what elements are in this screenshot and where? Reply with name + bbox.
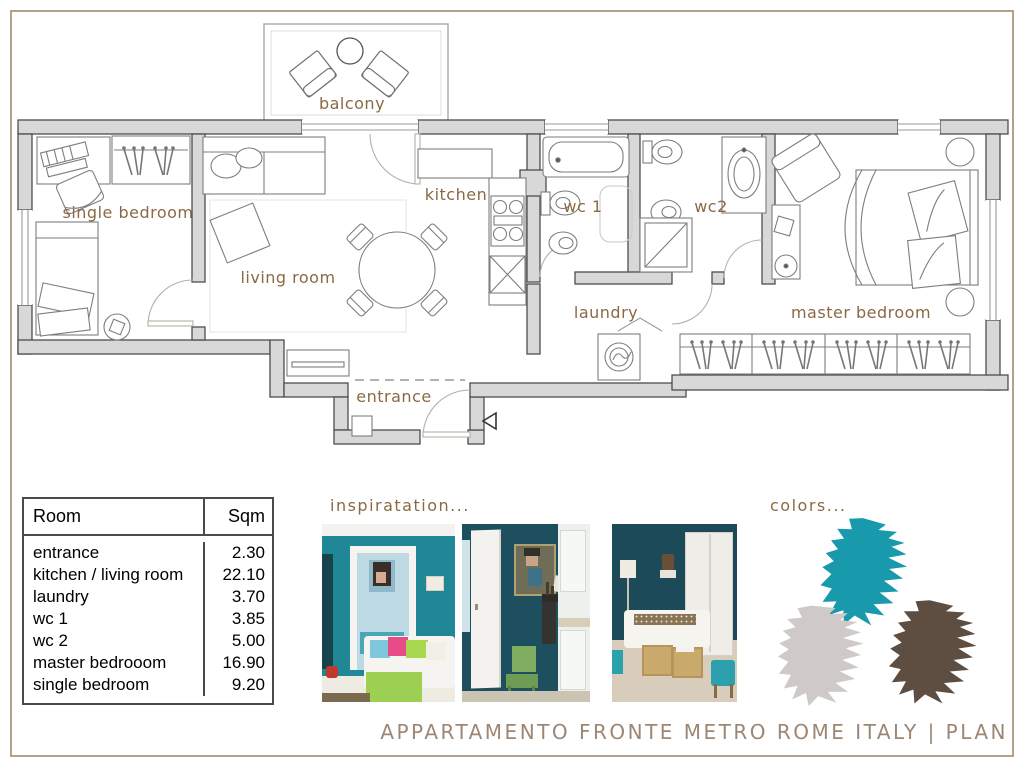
label-wc2: wc2 (694, 197, 728, 216)
table-row-sqm: 22.10 (205, 564, 265, 586)
table-body: entrance kitchen / living room laundry w… (24, 536, 272, 703)
table-row-room: wc 1 (33, 608, 203, 630)
inspiration-photo-1 (322, 524, 455, 702)
table-row-room: entrance (33, 542, 203, 564)
col-header-sqm: Sqm (203, 499, 272, 534)
table-row-sqm: 3.85 (205, 608, 265, 630)
wardrobe (112, 136, 190, 184)
table-row-sqm: 2.30 (205, 542, 265, 564)
table-row-sqm: 3.70 (205, 586, 265, 608)
plan-board-page: balcony single bedroom living room kitch… (0, 0, 1024, 768)
label-balcony: balcony (319, 94, 385, 113)
color-swatch-brown (884, 596, 991, 711)
label-entrance: entrance (356, 387, 431, 406)
table-row-room: single bedroom (33, 674, 203, 696)
floor-plan: balcony single bedroom living room kitch… (0, 0, 1024, 490)
toilet (541, 192, 550, 215)
nightstand (946, 138, 974, 166)
label-kitchen: kitchen (425, 185, 487, 204)
inspiration-photo-2 (462, 524, 590, 702)
armchair (770, 132, 842, 204)
label-single-bedroom: single bedroom (63, 203, 194, 222)
table-header: Room Sqm (24, 499, 272, 536)
nightstand (946, 288, 974, 316)
table-row-room: wc 2 (33, 630, 203, 652)
wc1-fixtures (541, 137, 632, 254)
board-title: APPARTAMENTO FRONTE METRO ROME ITALY | P… (380, 720, 1008, 744)
label-living-room: living room (240, 268, 335, 287)
table-row-sqm: 16.90 (205, 652, 265, 674)
table-row-room: kitchen / living room (33, 564, 203, 586)
toilet (643, 141, 652, 163)
bath-mat (600, 186, 632, 242)
balcony-table (337, 38, 363, 64)
room-area-table: Room Sqm entrance kitchen / living room … (22, 497, 274, 705)
label-laundry: laundry (574, 303, 638, 322)
entry-arrow (483, 413, 496, 429)
color-swatch-gray (773, 600, 878, 709)
label-master-bedroom: master bedroom (791, 303, 931, 322)
table-row-room: master bedrooom (33, 652, 203, 674)
counter (418, 149, 492, 178)
laundry-fixtures (598, 318, 662, 380)
inspiration-photo-3 (612, 524, 737, 702)
table-row-sqm: 5.00 (205, 630, 265, 652)
single-bedroom-furniture (36, 136, 190, 340)
pillow (908, 236, 961, 289)
col-header-room: Room (24, 499, 203, 534)
cabinet (352, 416, 372, 436)
label-wc1: wc 1 (563, 197, 602, 216)
table-row-room: laundry (33, 586, 203, 608)
coffee-table (210, 203, 270, 263)
dining-table (359, 232, 435, 308)
inspiration-label: inspiratation... (330, 496, 470, 515)
table-row-sqm: 9.20 (205, 674, 265, 696)
